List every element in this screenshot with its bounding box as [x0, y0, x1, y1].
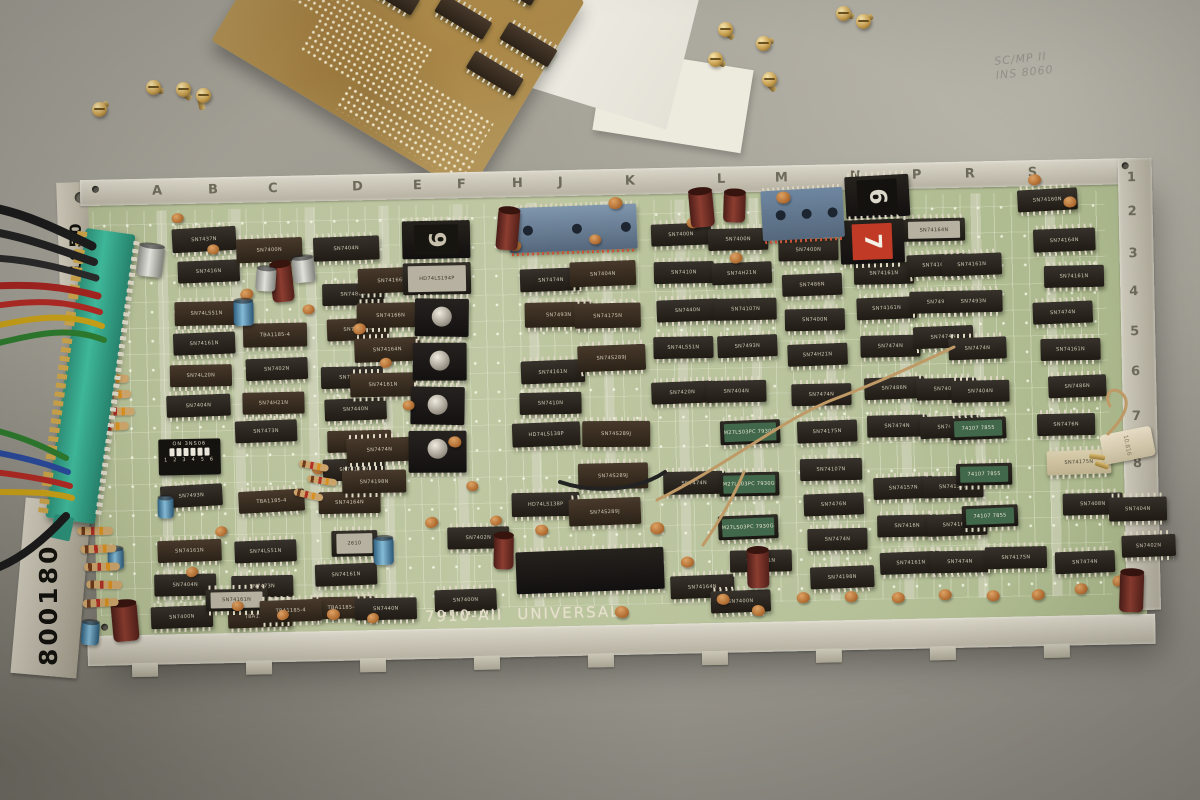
ic-chip-label: SN74161N: [941, 252, 1002, 276]
column-letter: P: [912, 168, 923, 183]
ic-chip-label: SN7474N: [930, 550, 990, 573]
column-letter: J: [558, 175, 564, 190]
ic-chip-label: SN7437N: [171, 226, 236, 254]
ic-chip: SN7473N: [235, 419, 298, 443]
column-letter: C: [268, 181, 279, 196]
ic-chip-label: SN7400N: [151, 605, 214, 629]
ic-chip: 74107 7855: [950, 416, 1007, 440]
ic-chip-label: SN74S289J: [582, 421, 650, 447]
frame-tab: [132, 663, 158, 678]
ic-chip-label: SN7404N: [313, 235, 380, 262]
frame-tab: [1044, 644, 1070, 659]
dip-switch-levers: [158, 447, 220, 456]
ic-chip: SN7402N: [1121, 534, 1176, 558]
socket-hole: [621, 221, 631, 231]
ic-chip-label: SN74S289J: [577, 344, 646, 373]
ic-chip-label: SN74175N: [574, 302, 641, 328]
ic-chip-label: SN74161N: [350, 372, 416, 397]
ic-chip-label: SN7486N: [1048, 374, 1107, 398]
ic-chip-label: [481, 0, 541, 6]
screw-head: [92, 102, 107, 117]
ic-chip-label: SN7416N: [177, 259, 240, 283]
dip-switch-lever: [169, 448, 174, 456]
row-number: 3: [1128, 246, 1137, 261]
ic-chip: SN7404N: [569, 260, 636, 288]
socket-hole: [572, 223, 582, 233]
mounting-hole: [101, 624, 108, 631]
ic-chip: TBA1185-4: [243, 322, 307, 347]
ic-chip: SN74LS51N: [653, 336, 713, 359]
filter-capacitor: [747, 548, 770, 588]
ic-chip: SN74198N: [810, 565, 875, 589]
ic-chip-label: SN7493N: [944, 290, 1002, 313]
ic-chip: [515, 547, 665, 595]
filter-capacitor: [495, 207, 520, 251]
ic-chip-label: SN74H21N: [242, 392, 304, 415]
ceramic-disc-capacitor: [776, 191, 790, 203]
ic-chip: SN74S289J: [582, 421, 650, 447]
ic-chip-label: SN7474N: [791, 383, 851, 406]
ic-chip-label: SN74107N: [714, 298, 776, 321]
ceramic-disc-capacitor: [466, 480, 479, 492]
filter-capacitor: [1119, 570, 1144, 613]
ic-chip: [410, 386, 465, 425]
column-letter: D: [352, 179, 364, 194]
dip-socket: [760, 187, 845, 241]
socket-hole: [801, 209, 812, 220]
eprom-window: [432, 306, 452, 326]
dip-switch-lever: [204, 448, 209, 456]
dip-switch-lever: [197, 448, 202, 456]
ic-chip-label: SN7402N: [1121, 534, 1176, 558]
frame-tab: [360, 658, 386, 673]
ic-chip: SN7440N: [355, 597, 417, 620]
ceramic-disc-capacitor: [1074, 582, 1089, 595]
ic-chip-label: AM27LS03PC 7930GM: [724, 422, 777, 442]
ic-chip: SN74161N: [941, 252, 1002, 276]
ic-chip-label: SN7493N: [717, 334, 778, 358]
dip-socket: [508, 203, 638, 253]
prototype-pcb: [211, 0, 585, 195]
frame-tab: [246, 660, 272, 675]
ic-chip-label: SN74175N: [797, 419, 858, 443]
ic-chip-label: [434, 0, 492, 40]
ic-chip-label: 2610: [336, 533, 372, 554]
ic-chip-label: SN7474N: [948, 336, 1007, 360]
ceramic-disc-capacitor: [845, 591, 858, 602]
ic-chip-label: [466, 50, 524, 96]
eprom-window: [430, 351, 450, 371]
ic-chip: SN74161N: [856, 296, 917, 320]
ic-chip: SN74H21N: [787, 343, 848, 367]
screw-head: [756, 36, 771, 51]
ic-chip: SN7474N: [860, 335, 920, 358]
ic-chip-label: SN7400N: [785, 308, 845, 331]
ic-chip: SN74107N: [800, 458, 862, 481]
ic-chip: SN74H21N: [711, 261, 772, 285]
ic-chip: SN7416N: [177, 259, 240, 283]
frame-tab: [816, 648, 842, 663]
resistor: [80, 544, 116, 553]
ic-chip-label: SN7404N: [569, 260, 636, 288]
ic-chip: SN74164N: [1033, 227, 1096, 252]
filter-capacitor: [110, 600, 140, 642]
eprom-sticker: 7: [852, 223, 893, 261]
ic-chip: SN74175N: [797, 419, 858, 443]
ic-chip-label: SN7476N: [1037, 413, 1095, 436]
ceramic-disc-capacitor: [379, 357, 393, 369]
ceramic-disc-capacitor: [938, 589, 951, 601]
ic-chip-label: SN74L20N: [170, 364, 232, 387]
ic-chip-label: SN74161N: [173, 331, 236, 355]
ceramic-disc-capacitor: [986, 590, 1000, 602]
ic-chip-label: SN74161N: [315, 562, 378, 586]
ic-chip-label: AM27LS03PC 7930GM: [722, 517, 775, 537]
electrolytic-capacitor: [291, 255, 316, 283]
ic-chip: SN7474N: [807, 528, 867, 551]
ceramic-disc-capacitor: [207, 244, 219, 254]
column-letter: B: [208, 182, 219, 197]
eprom-digit: 6: [864, 188, 891, 205]
dip-switch-lever: [176, 448, 181, 456]
screw-head: [708, 52, 723, 67]
ic-chip: SN74198N: [342, 469, 406, 493]
column-letter: F: [457, 177, 467, 192]
column-letter: K: [625, 174, 636, 189]
ic-chip: SN7474N: [948, 336, 1007, 360]
ic-chip-label: SN74H21N: [787, 343, 848, 367]
ic-chip-label: HD74LS194P: [408, 265, 467, 292]
ic-chip-label: SN7474N: [860, 335, 920, 358]
ic-chip-label: SN74175N: [985, 546, 1047, 569]
socket-hole: [523, 225, 533, 235]
ceramic-disc-capacitor: [1063, 196, 1076, 207]
eprom-digit: 7: [859, 233, 886, 250]
ic-chip-label: SN7474N: [346, 437, 413, 464]
electrolytic-capacitor: [157, 496, 173, 518]
ic-chip: SN74S289J: [577, 344, 646, 373]
ic-chip: SN7402N: [245, 357, 308, 381]
ic-chip-label: SN74LS51N: [234, 539, 297, 563]
ic-chip-label: SN74161N: [1040, 338, 1100, 361]
eprom-window: [427, 395, 447, 415]
resistor: [84, 562, 120, 571]
ic-chip: SN7410N: [654, 261, 714, 284]
column-letter: M: [775, 170, 789, 185]
ic-chip: SN7420N: [651, 380, 714, 404]
ic-chip: AM27LS03PC 7930GM: [720, 419, 781, 445]
column-letter: A: [152, 183, 163, 198]
ic-chip-label: SN74LS51N: [174, 301, 238, 326]
column-letter: E: [413, 178, 423, 193]
socket-hole: [775, 210, 786, 221]
dip-switch-lever: [183, 448, 188, 456]
ic-chip: 74107 7855: [962, 504, 1019, 528]
ceramic-disc-capacitor: [1031, 588, 1046, 601]
screw-head: [718, 22, 733, 37]
ic-chip: SN74LS51N: [174, 301, 238, 326]
ic-chip-label: SN7404N: [951, 380, 1009, 403]
ic-chip: [434, 0, 492, 40]
ic-chip-label: SN7474N: [807, 528, 867, 551]
ic-chip-label: SN7440N: [656, 298, 719, 322]
ic-chip: 2610: [331, 530, 378, 557]
ic-chip: [481, 0, 541, 6]
ic-chip: SN7493N: [717, 334, 778, 358]
ic-chip: SN7474N: [867, 414, 927, 437]
row-number: 4: [1129, 284, 1138, 299]
ic-chip: SN74164N: [903, 218, 965, 242]
ic-chip-label: SN7476N: [803, 492, 864, 516]
column-letter: L: [717, 172, 727, 187]
frame-tab: [930, 646, 956, 661]
ic-chip-label: 74107 7855: [966, 507, 1015, 525]
ic-chip: SN7404N: [1109, 496, 1167, 521]
ceramic-disc-capacitor: [681, 556, 694, 567]
electrolytic-capacitor: [136, 243, 166, 278]
pencil-note: SC/MP II INS 8060: [994, 49, 1055, 83]
eprom-sticker: 6: [856, 178, 898, 214]
ic-chip-label: SN74198N: [342, 469, 406, 493]
ic-chip: SN74175N: [574, 302, 641, 328]
ic-chip: SN74H21N: [242, 392, 304, 415]
ic-chip: SN74161N: [173, 331, 236, 355]
ic-chip: SN7474N: [791, 383, 851, 406]
screw-head: [176, 82, 191, 97]
socket-pins: [512, 248, 636, 256]
ic-chip: SN7404N: [951, 380, 1009, 403]
ic-chip-label: SN7404N: [706, 380, 766, 403]
column-letter: H: [512, 176, 524, 191]
filter-capacitor: [493, 533, 514, 569]
ic-chip: SN7400N: [708, 228, 768, 251]
ic-chip: SN7404N: [313, 235, 380, 262]
ic-chip: SN7486N: [782, 273, 843, 297]
row-number: 6: [1131, 364, 1140, 379]
frame-tab: [702, 651, 728, 666]
ic-chip-label: SN74S289J: [578, 462, 649, 489]
ic-chip: TBA1185-4: [259, 599, 322, 623]
ceramic-disc-capacitor: [892, 592, 905, 603]
ic-chip: SN74S289J: [568, 497, 641, 527]
ic-chip-label: SN74LS51N: [653, 336, 713, 359]
ic-chip-label: SN7474N: [663, 471, 725, 495]
ic-chip: SN7486N: [1048, 374, 1107, 398]
ic-chip: SN7476N: [803, 492, 864, 516]
ic-chip-label: SN74S289J: [568, 497, 641, 527]
column-letter: R: [965, 166, 976, 181]
ic-chip: AM27LS03PC 7930GM: [719, 472, 779, 497]
ceramic-disc-capacitor: [424, 515, 440, 529]
main-pcb-7910: ABCDEFHJKLMNPRS 12345678910 7910-AIIUNIV…: [88, 168, 1147, 652]
ic-chip-label: SN7473N: [235, 419, 298, 443]
ic-chip: [413, 343, 467, 381]
screw-head: [146, 80, 161, 95]
ic-chip-label: SN7486N: [782, 273, 843, 297]
row-number: 1: [1127, 170, 1136, 185]
ic-chip-label: AM27LS03PC 7930GM: [723, 475, 775, 494]
ic-chip: SN74L20N: [170, 364, 232, 387]
ic-chip-label: SN74161N: [520, 359, 585, 384]
ic-chip: SN7474N: [1055, 550, 1116, 574]
electrolytic-capacitor: [373, 537, 394, 565]
dip-switch-numbers: 1 2 3 4 5 6: [159, 456, 221, 463]
ic-chip-label: SN74161N: [1044, 265, 1104, 288]
ic-chip: AM27LS03PC 7930GM: [718, 514, 779, 540]
ic-chip: SN74161N: [1040, 338, 1100, 361]
eprom-sticker: 9: [414, 224, 459, 255]
ic-chip: SN7474N: [930, 550, 990, 573]
ic-chip: SN7474N: [1032, 300, 1093, 324]
ic-chip-label: TBA1185-4: [259, 599, 322, 623]
ic-chip-label: SN74164N: [908, 221, 960, 239]
ic-chip-label: SN7404N: [166, 394, 231, 418]
ic-chip-label: SN7400N: [708, 228, 768, 251]
filter-capacitor: [688, 188, 715, 228]
screw-head: [762, 72, 777, 87]
ceramic-disc-capacitor: [302, 304, 314, 315]
ic-chip: HD74LS138P: [512, 421, 581, 448]
ic-chip-label: SN7474N: [1055, 550, 1116, 574]
dip-switch: ON 3NS06 1 2 3 4 5 6: [158, 438, 221, 475]
ic-chip-label: HD74LS138P: [512, 421, 581, 448]
ic-chip: SN7474N: [346, 437, 413, 464]
ic-chip-label: SN7410N: [519, 392, 581, 415]
row-number: 2: [1128, 204, 1137, 219]
ic-chip: SN74S289J: [578, 462, 649, 489]
ic-chip-label: SN74164N: [1033, 227, 1096, 252]
ic-chip: SN7474N: [663, 471, 725, 495]
ic-chip: SN74107N: [714, 298, 776, 321]
ic-chip: [466, 50, 524, 96]
ic-chip: SN74161N: [520, 359, 585, 384]
ic-chip: HD74LS194P: [403, 262, 472, 295]
ic-chip: SN7400N: [785, 308, 845, 331]
ic-chip-label: 74107 7855: [954, 419, 1003, 437]
eprom-chip: 6: [844, 174, 910, 220]
ic-chip-label: SN74198N: [810, 565, 875, 589]
electrolytic-capacitor: [255, 267, 277, 292]
eprom-chip: 7: [839, 218, 905, 264]
ic-chip-label: SN7474N: [1032, 300, 1093, 324]
ic-chip: SN7437N: [171, 226, 236, 254]
ic-chip: SN7400N: [151, 605, 214, 629]
ic-chip: SN74161N: [1044, 265, 1104, 288]
eprom-chip: 9: [402, 220, 471, 259]
electrolytic-capacitor: [81, 620, 101, 645]
resistor: [77, 527, 113, 535]
silkscreen-maker: UNIVERSAL: [517, 602, 621, 623]
filter-capacitor: [723, 190, 746, 223]
ic-chip: SN7404N: [706, 380, 766, 403]
ic-chip: SN74161N: [315, 562, 378, 586]
ic-chip-label: SN7420N: [651, 380, 714, 404]
ic-chip-label: SN7404N: [1109, 496, 1167, 521]
ic-chip-label: [515, 547, 665, 595]
ic-chip-label: SN74H21N: [711, 261, 772, 285]
ceramic-disc-capacitor: [535, 524, 549, 536]
ceramic-disc-capacitor: [796, 591, 810, 603]
frame-tab: [588, 653, 614, 668]
bench-photo-scene: SC/MP II INS 8060 1050 800180 ABCDEFHJKL…: [0, 0, 1200, 800]
ic-chip: [414, 298, 469, 337]
ic-chip: SN74161N: [350, 372, 416, 397]
eprom-window: [428, 439, 448, 459]
ic-chip-label: SN7402N: [245, 357, 308, 381]
electrolytic-capacitor: [233, 300, 254, 326]
silkscreen-part-number: 7910-AII: [425, 606, 504, 626]
ic-chip: SN74175N: [985, 546, 1047, 569]
socket-hole: [827, 207, 838, 218]
ic-chip: SN7493N: [944, 290, 1002, 313]
ic-chip-label: SN7410N: [654, 261, 714, 284]
ic-chip: SN7410N: [519, 392, 581, 415]
dip-switch-lever: [190, 448, 195, 456]
eprom-digit: 9: [423, 231, 449, 248]
ic-chip: SN74161N: [157, 539, 222, 563]
row-number: 5: [1130, 324, 1139, 339]
frame-tab: [474, 655, 500, 670]
ic-chip: [499, 22, 557, 68]
ic-chip-label: SN74161N: [856, 296, 917, 320]
resistor: [86, 580, 122, 589]
ic-chip: SN7476N: [1037, 413, 1095, 436]
ic-chip-label: SN7474N: [867, 414, 927, 437]
ic-chip-label: SN7440N: [355, 597, 417, 620]
ic-chip-label: TBA1185-4: [243, 322, 307, 347]
screw-head: [196, 88, 211, 103]
ic-chip-label: SN74107N: [800, 458, 862, 481]
ceramic-disc-capacitor: [171, 213, 184, 224]
screw-head: [856, 14, 871, 29]
ic-chip-label: SN74161N: [157, 539, 222, 563]
ic-chip-label: [499, 22, 557, 68]
ic-chip: SN7440N: [656, 298, 719, 322]
ic-chip: SN74LS51N: [234, 539, 297, 563]
ic-chip: 74107 7855: [956, 463, 1012, 486]
ic-chip-label: 74107 7855: [960, 466, 1008, 483]
ceramic-disc-capacitor: [650, 522, 664, 534]
ic-chip: SN7404N: [166, 394, 231, 418]
screw-head: [836, 6, 851, 21]
